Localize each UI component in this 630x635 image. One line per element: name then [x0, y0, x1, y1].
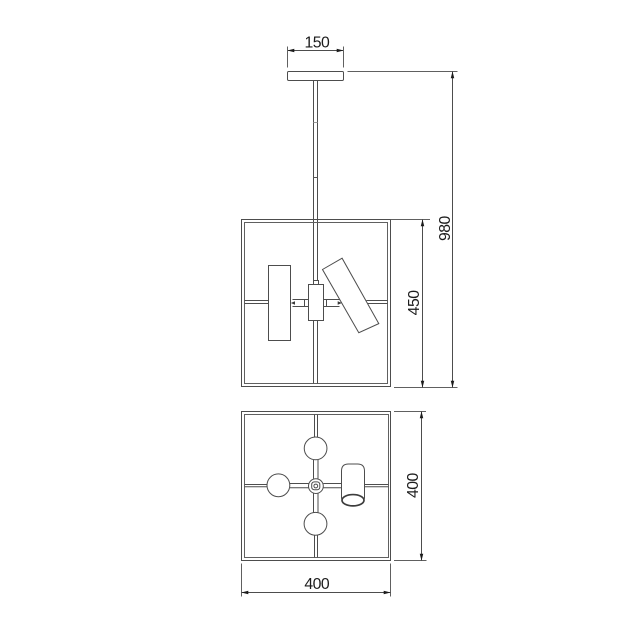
svg-text:400: 400 — [405, 472, 422, 498]
svg-text:400: 400 — [304, 576, 330, 593]
svg-text:150: 150 — [304, 35, 330, 52]
svg-text:450: 450 — [406, 290, 423, 316]
svg-text:980: 980 — [437, 215, 454, 241]
